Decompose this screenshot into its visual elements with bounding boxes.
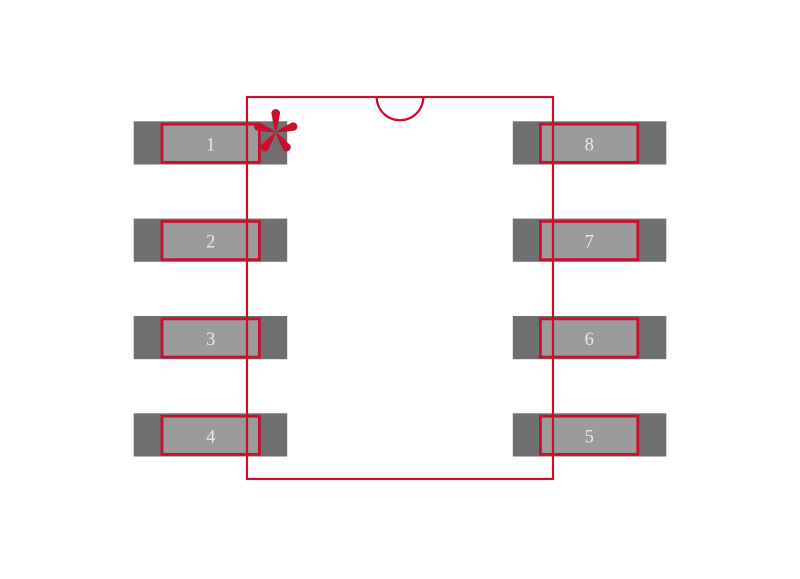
svg-text:6: 6 <box>585 330 594 350</box>
svg-text:1: 1 <box>206 135 215 155</box>
svg-text:3: 3 <box>206 330 215 350</box>
svg-text:4: 4 <box>206 427 215 447</box>
svg-text:5: 5 <box>585 427 594 447</box>
svg-text:2: 2 <box>206 233 215 253</box>
svg-text:7: 7 <box>585 233 594 253</box>
svg-text:8: 8 <box>585 135 594 155</box>
